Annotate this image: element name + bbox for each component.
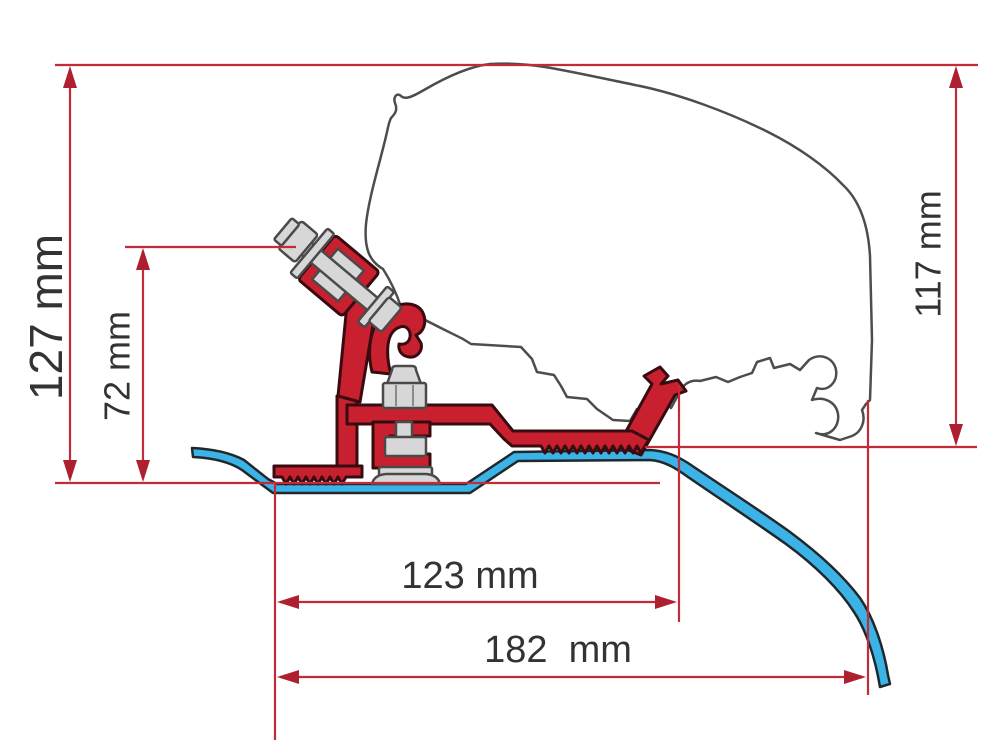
arrowhead-127-down (63, 460, 77, 482)
arrowhead-127-up (63, 66, 77, 88)
arrowhead-123-left (277, 595, 299, 609)
center-bolt-shaft (396, 422, 412, 438)
diagram-page: 127 mm 72 mm 117 mm 123 mm 182 mm (0, 0, 1000, 750)
dimension-label-72mm: 72 mm (97, 311, 138, 421)
awning-adapter-dimension-diagram: 127 mm 72 mm 117 mm 123 mm 182 mm (0, 0, 1000, 750)
dimension-label-117mm: 117 mm (908, 190, 949, 317)
arrowhead-72-up (136, 248, 150, 270)
center-bolt-stud-cap (387, 366, 421, 384)
arrowhead-182-left (277, 670, 299, 684)
arrowhead-182-right (844, 670, 866, 684)
center-bolt-lock-nut (385, 437, 426, 456)
arrowhead-123-right (655, 595, 677, 609)
dimension-label-127mm: 127 mm (20, 234, 72, 400)
arrowhead-117-up (949, 66, 963, 88)
arrowhead-117-down (949, 424, 963, 446)
vehicle-body-outline (366, 64, 872, 440)
center-bolt-hex-nut (383, 383, 426, 408)
clamp-bolt (264, 207, 410, 343)
bracket-foot (274, 466, 362, 484)
dimension-label-182mm: 182 mm (484, 629, 632, 671)
arrowhead-72-down (136, 460, 150, 482)
dimension-label-123mm: 123 mm (401, 555, 538, 597)
